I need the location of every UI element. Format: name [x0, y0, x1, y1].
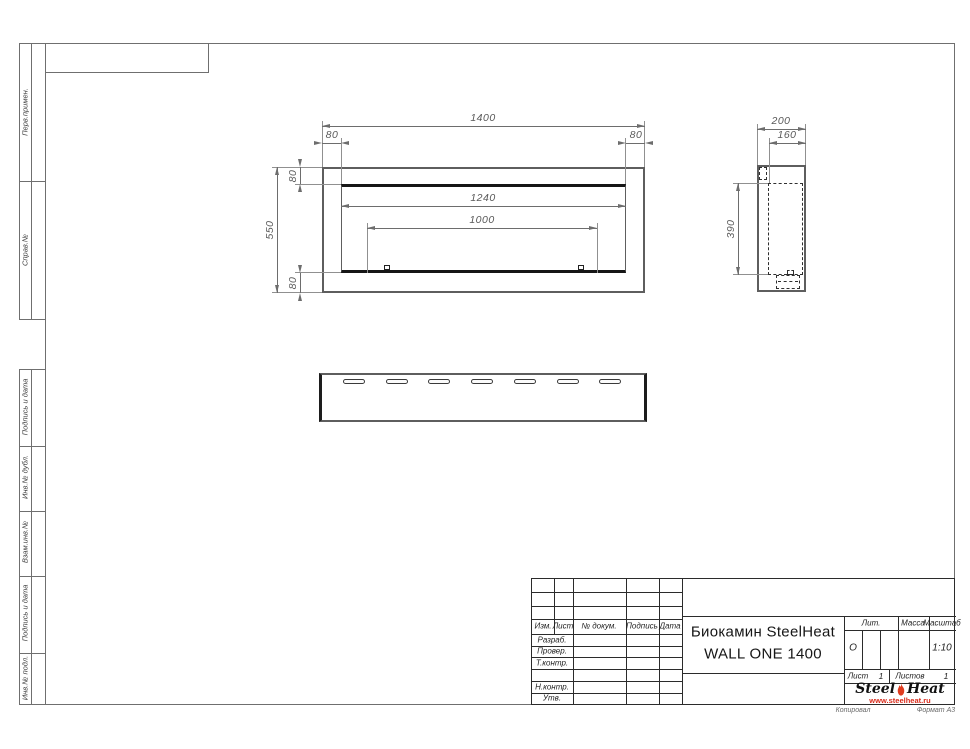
- divider-line: [532, 619, 682, 620]
- side-view-burner-block: [776, 275, 800, 289]
- steelheat-logo: Steel Heat www.steelheat.ru: [844, 683, 956, 704]
- margin-label-podpis-data-2: Подпись и дата: [21, 585, 30, 642]
- divider-line: [844, 630, 956, 631]
- col-header-doc: № докум.: [581, 622, 616, 631]
- vent-slot: [599, 379, 621, 384]
- col-header-sign: Подпись: [626, 622, 658, 631]
- burner-tab-right: [578, 265, 584, 270]
- bottom-view-strip: [319, 373, 647, 422]
- row-label-prover: Провер.: [537, 647, 567, 656]
- divider-line: [682, 579, 683, 704]
- margin-label-sprav-no: Справ.№: [21, 234, 30, 266]
- side-view-burner-centerline: [778, 281, 798, 282]
- divider-line: [682, 673, 844, 674]
- flame-icon: [896, 683, 906, 696]
- top-stamp-box: [45, 43, 209, 73]
- row-label-tkontr: Т.контр.: [536, 659, 568, 668]
- sheet-value: 1: [879, 671, 884, 681]
- row-label-utv: Утв.: [543, 694, 561, 703]
- divider-line: [532, 592, 682, 593]
- extension-line: [597, 223, 598, 273]
- divider-line: [20, 446, 45, 447]
- dim-line-80-right: [626, 143, 645, 144]
- side-view-hidden-cavity: [768, 183, 803, 275]
- divider-line: [659, 579, 660, 704]
- divider-line: [20, 181, 45, 182]
- dim-text-1000: 1000: [469, 214, 494, 226]
- margin-label-podpis-data-1: Подпись и дата: [21, 379, 30, 436]
- title-block: Изм. Лист № докум. Подпись Дата Разраб. …: [531, 578, 955, 705]
- format-note: Формат А3: [917, 707, 955, 714]
- drawing-sheet: Перв.примен. Справ.№ Подпись и дата Инв.…: [0, 0, 970, 749]
- margin-label-inv-dubl: Инв.№ дубл.: [21, 455, 30, 499]
- col-header-date: Дата: [659, 622, 680, 631]
- extension-line: [367, 223, 368, 273]
- divider-line: [880, 630, 881, 669]
- divider-line: [898, 616, 899, 669]
- vent-slot: [514, 379, 536, 384]
- vent-slot: [557, 379, 579, 384]
- divider-line: [862, 630, 863, 669]
- document-title-line1: Биокамин SteelHeat: [691, 624, 835, 641]
- divider-line: [844, 669, 956, 670]
- sheet-label: Лист: [848, 672, 869, 681]
- dim-text-550: 550: [264, 220, 276, 239]
- vent-slot: [471, 379, 493, 384]
- dim-line-80-bottom: [300, 273, 301, 293]
- mass-label: Масса: [901, 619, 925, 628]
- dim-text-80-left: 80: [326, 129, 339, 141]
- dim-text-1240: 1240: [470, 192, 495, 204]
- margin-label-inv-podl: Инв.№ подл.: [21, 656, 30, 700]
- dim-line-550: [277, 167, 278, 293]
- dim-text-80-top: 80: [287, 170, 299, 183]
- side-view-burner-notch: [787, 270, 794, 275]
- extension-line: [272, 292, 322, 293]
- divider-line: [20, 653, 45, 654]
- burner-tab-left: [384, 265, 390, 270]
- logo-word-heat: Heat: [907, 683, 945, 696]
- dim-line-1000: [367, 228, 597, 229]
- scale-label: Масштаб: [923, 619, 960, 628]
- dim-text-80-bottom: 80: [287, 277, 299, 290]
- sheets-total-label: Листов: [895, 672, 924, 681]
- vent-slot: [343, 379, 365, 384]
- divider-line: [573, 579, 574, 704]
- row-label-nkontr: Н.контр.: [535, 683, 569, 692]
- divider-line: [20, 511, 45, 512]
- dim-line-1400: [322, 126, 645, 127]
- margin-stamp-top-group: [19, 43, 46, 320]
- col-header-izm: Изм.: [534, 622, 551, 631]
- scale-value: 1:10: [932, 643, 951, 654]
- dim-line-160: [769, 143, 806, 144]
- divider-line: [682, 616, 956, 617]
- extension-line: [272, 167, 322, 168]
- dim-line-80-left: [322, 143, 341, 144]
- row-label-razrab: Разраб.: [538, 636, 567, 645]
- divider-line: [532, 606, 682, 607]
- logo-url: www.steelheat.ru: [844, 696, 956, 705]
- dim-line-390: [738, 183, 739, 275]
- margin-label-vzam-inv: Взам.инв.№: [21, 521, 30, 563]
- vent-slot: [428, 379, 450, 384]
- dim-text-160: 160: [777, 129, 796, 141]
- logo-word-steel: Steel: [855, 683, 895, 696]
- dim-text-1400: 1400: [470, 112, 495, 124]
- document-title-line2: WALL ONE 1400: [704, 646, 822, 663]
- lit-value: О: [849, 643, 857, 654]
- sheets-total-value: 1: [944, 671, 949, 681]
- dim-text-80-right: 80: [630, 129, 643, 141]
- divider-line: [626, 579, 627, 704]
- dim-text-390: 390: [725, 219, 737, 238]
- side-view-hidden-bracket: [759, 167, 767, 180]
- divider-line: [532, 669, 682, 670]
- dim-text-200: 200: [771, 115, 790, 127]
- copied-note: Копировал: [836, 707, 871, 714]
- vent-slot: [386, 379, 408, 384]
- col-header-list: Лист: [553, 622, 574, 631]
- divider-line: [20, 576, 45, 577]
- lit-label: Лит.: [862, 619, 881, 628]
- dim-line-1240: [341, 206, 626, 207]
- margin-label-perv-primen: Перв.примен.: [21, 88, 30, 136]
- dim-line-80-top: [300, 167, 301, 184]
